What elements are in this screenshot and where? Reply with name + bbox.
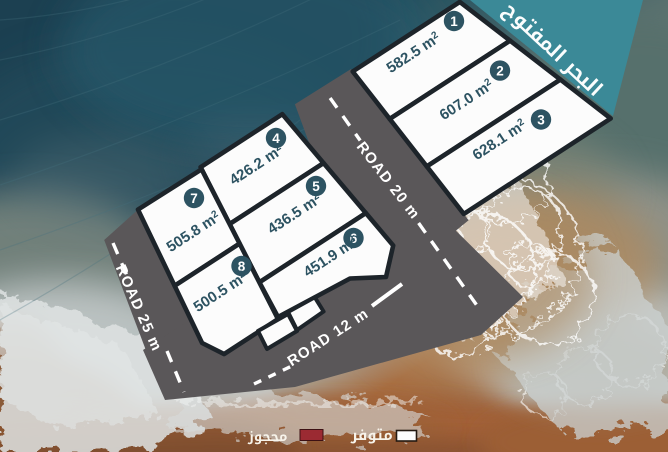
svg-text:2: 2 (496, 64, 504, 79)
svg-text:7: 7 (190, 191, 198, 206)
svg-text:3: 3 (537, 112, 545, 127)
svg-text:1: 1 (450, 14, 458, 29)
